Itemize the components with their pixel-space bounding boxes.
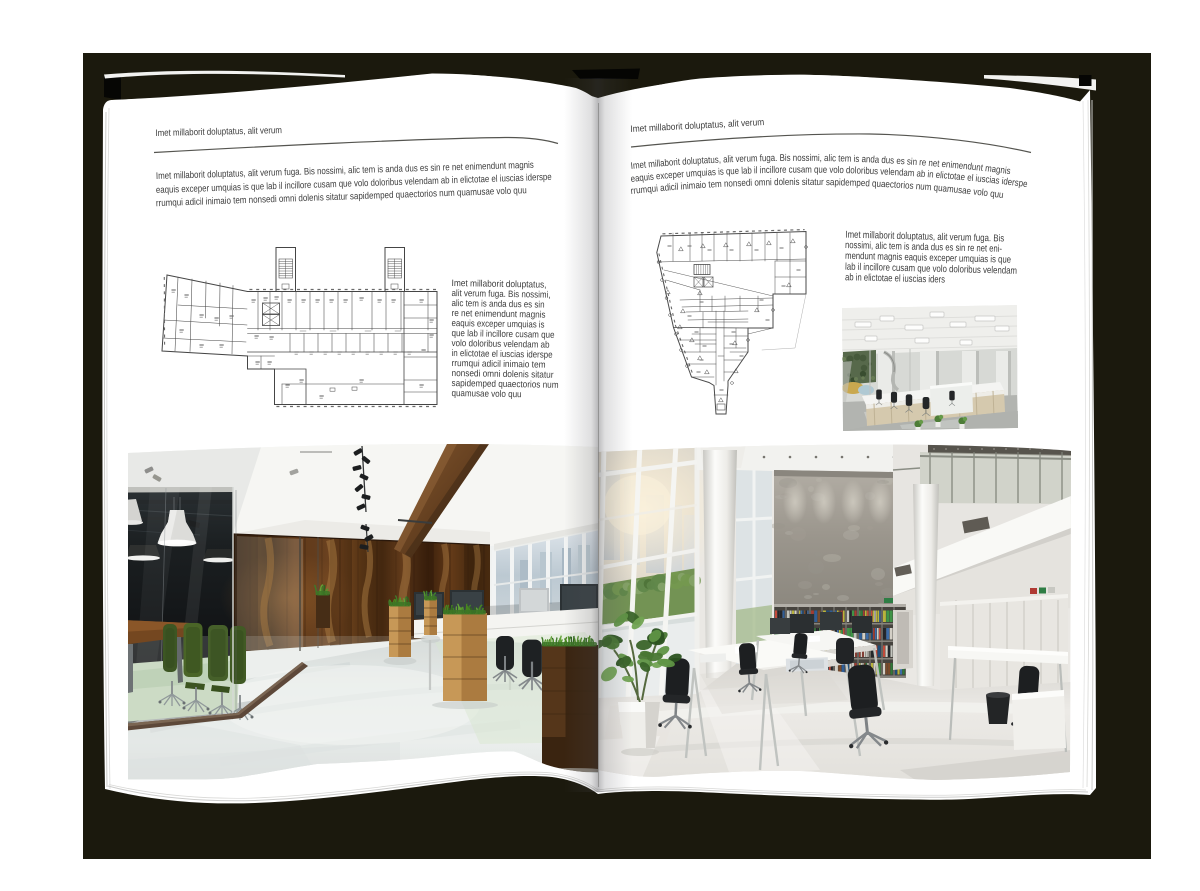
svg-text:quamusae volo quu: quamusae volo quu: [451, 388, 521, 399]
